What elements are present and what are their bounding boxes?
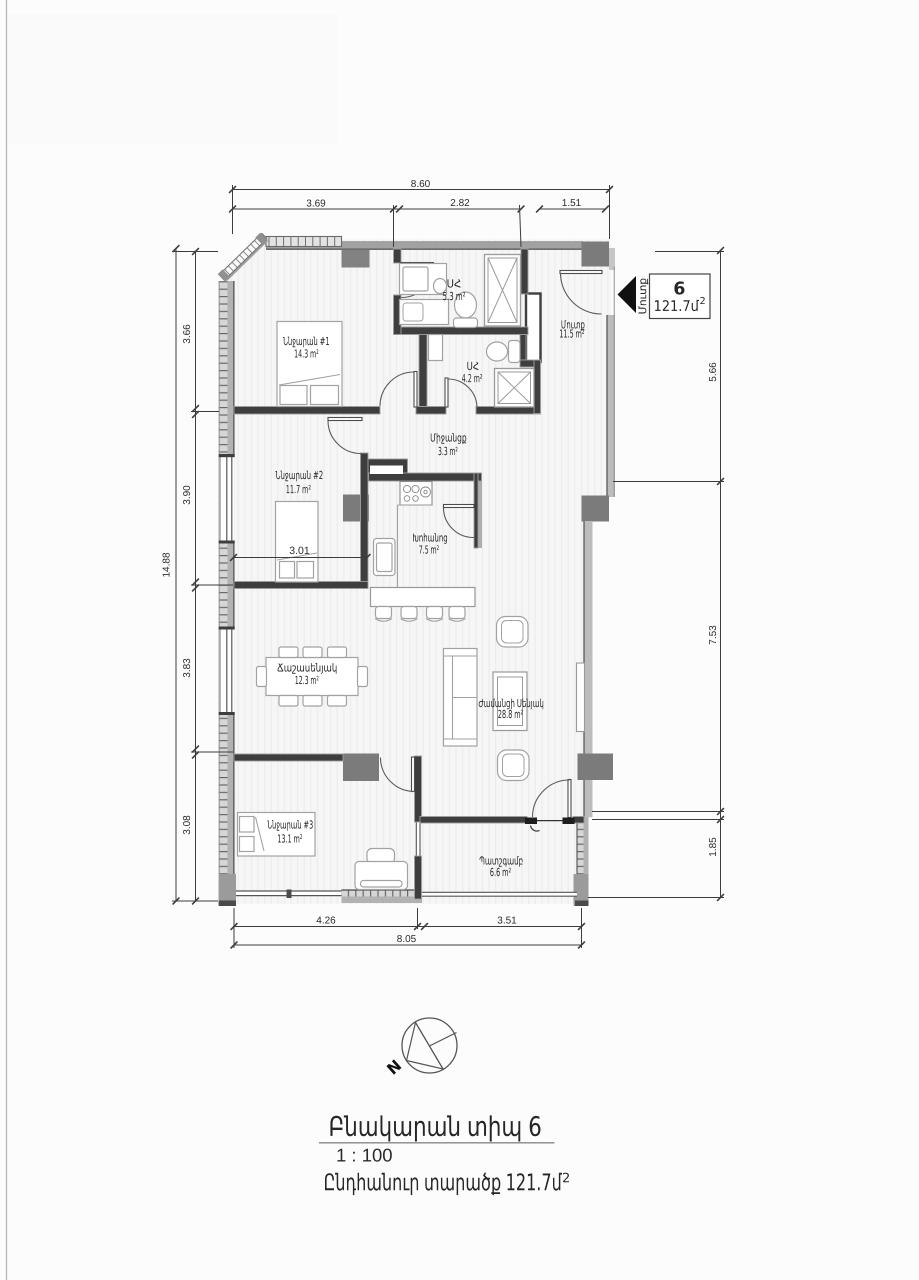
svg-text:3.51: 3.51 <box>497 916 517 927</box>
svg-text:4.26: 4.26 <box>316 916 336 927</box>
svg-text:3.66: 3.66 <box>182 324 193 344</box>
svg-text:3.01: 3.01 <box>289 545 310 557</box>
svg-text:1.85: 1.85 <box>708 837 719 857</box>
svg-text:2.82: 2.82 <box>450 198 470 209</box>
svg-text:3.90: 3.90 <box>182 485 193 505</box>
svg-text:1 : 100: 1 : 100 <box>336 1145 393 1166</box>
svg-text:7.53: 7.53 <box>708 625 719 645</box>
svg-text:3.83: 3.83 <box>182 658 193 678</box>
svg-text:1.51: 1.51 <box>562 198 582 209</box>
svg-text:8.05: 8.05 <box>397 934 417 945</box>
svg-text:14.88: 14.88 <box>162 552 173 577</box>
svg-text:8.60: 8.60 <box>411 179 431 190</box>
svg-text:3.69: 3.69 <box>306 199 326 210</box>
svg-text:3.08: 3.08 <box>182 815 193 835</box>
svg-text:5.66: 5.66 <box>708 362 719 382</box>
